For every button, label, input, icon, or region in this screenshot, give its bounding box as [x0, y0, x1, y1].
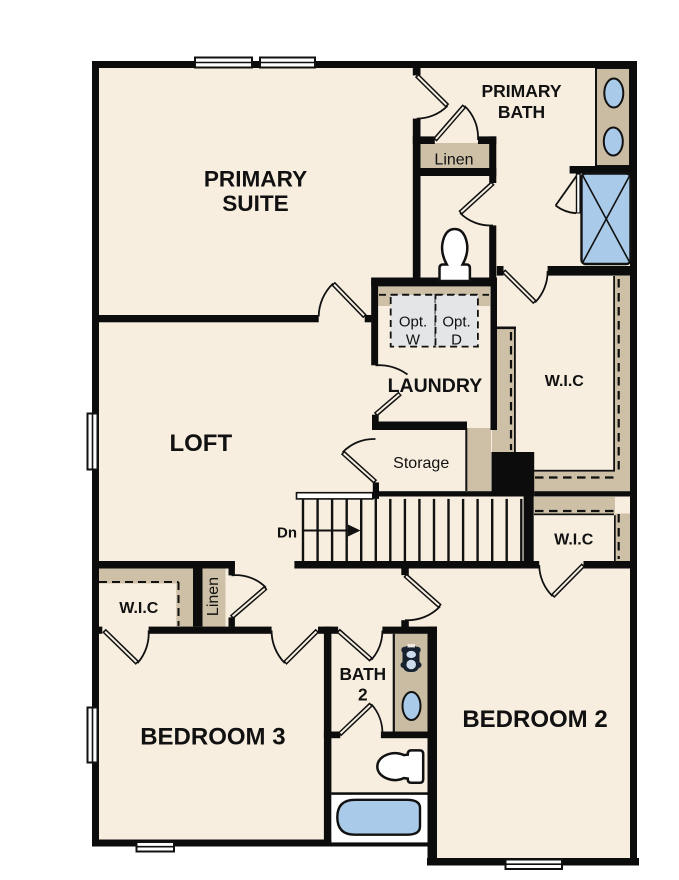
svg-text:W.I.C: W.I.C: [119, 600, 159, 617]
svg-text:Opt.: Opt.: [442, 314, 470, 331]
svg-text:Linen: Linen: [205, 577, 222, 616]
svg-text:PRIMARY: PRIMARY: [481, 81, 561, 101]
svg-text:Linen: Linen: [434, 152, 473, 169]
svg-text:Storage: Storage: [393, 455, 449, 472]
svg-text:SUITE: SUITE: [222, 191, 289, 216]
svg-text:LOFT: LOFT: [169, 430, 232, 457]
svg-text:PRIMARY: PRIMARY: [204, 167, 307, 192]
svg-text:2: 2: [358, 685, 368, 705]
svg-text:LAUNDRY: LAUNDRY: [388, 375, 483, 397]
svg-text:W.I.C: W.I.C: [545, 373, 585, 390]
svg-text:Opt.: Opt.: [399, 314, 427, 331]
svg-text:BATH: BATH: [339, 664, 386, 684]
svg-text:W.I.C: W.I.C: [554, 532, 594, 549]
svg-text:BEDROOM 3: BEDROOM 3: [140, 724, 285, 751]
svg-text:W: W: [406, 332, 421, 349]
svg-text:BATH: BATH: [498, 102, 545, 122]
svg-text:Dn: Dn: [277, 525, 297, 542]
svg-text:BEDROOM 2: BEDROOM 2: [462, 706, 607, 733]
svg-text:D: D: [451, 332, 462, 349]
